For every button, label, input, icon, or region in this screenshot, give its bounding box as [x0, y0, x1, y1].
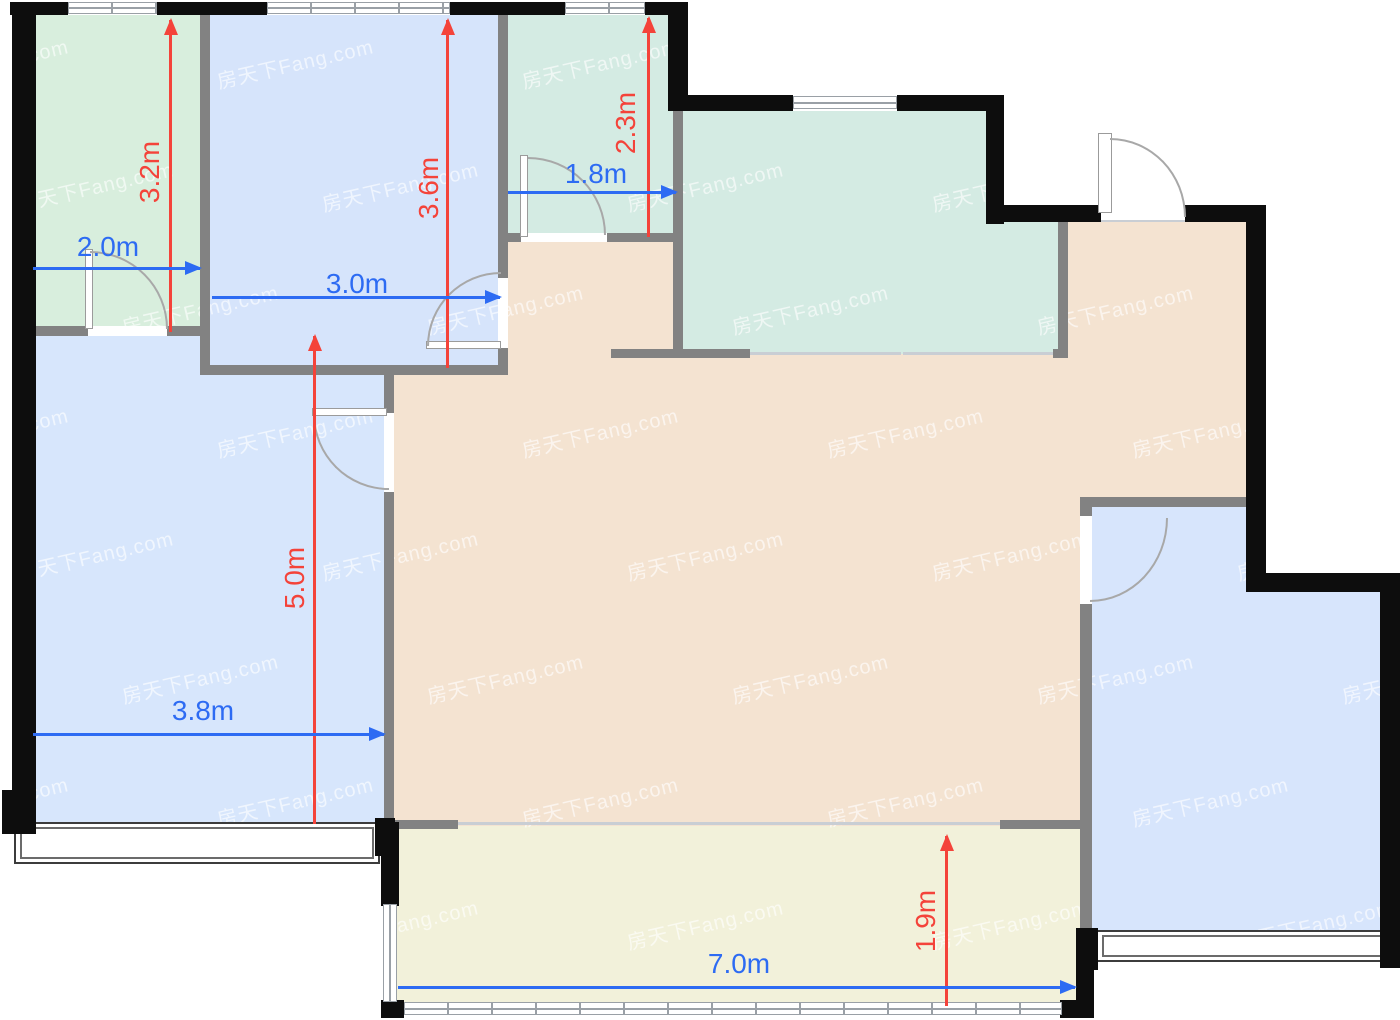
- bay-window-bottom-right: [1096, 930, 1394, 962]
- dim-label-2-0m: 2.0m: [66, 232, 150, 262]
- bay-window-left: [14, 822, 380, 864]
- dim-arrow: [1060, 980, 1077, 994]
- wall-outer: [12, 2, 36, 834]
- wall: [200, 365, 508, 375]
- wall: [673, 93, 683, 358]
- dim-label-3-6m: 3.6m: [414, 146, 444, 230]
- dim-line-3-6m: [446, 20, 449, 368]
- wall-outer: [986, 205, 1101, 222]
- wall: [1080, 604, 1092, 934]
- dim-arrow: [642, 16, 656, 33]
- dim-arrow: [308, 334, 322, 351]
- wall: [36, 326, 88, 336]
- window: [383, 904, 397, 1002]
- area-living-dining-2: [506, 240, 676, 826]
- wall: [384, 492, 394, 833]
- watermark-text: 房天下Fang.com: [1129, 30, 1291, 94]
- dim-line-2-0m: [33, 267, 200, 270]
- room-green-large: [683, 111, 993, 354]
- room-green-large-ext: [986, 222, 1062, 354]
- dim-arrow: [485, 290, 502, 304]
- wall: [1058, 216, 1068, 358]
- dim-arrow: [940, 834, 954, 851]
- dim-label-3-2m: 3.2m: [135, 130, 165, 214]
- dim-line-1-8m: [508, 191, 676, 194]
- wall: [200, 15, 210, 375]
- wall: [1080, 497, 1258, 507]
- dim-label-3-0m: 3.0m: [315, 269, 399, 299]
- dim-label-2-3m: 2.3m: [611, 81, 641, 165]
- dim-label-1-9m: 1.9m: [911, 879, 941, 963]
- window: [793, 96, 897, 109]
- window: [68, 2, 157, 14]
- entry-door-arc: [1110, 138, 1186, 217]
- room-blue-left-bedroom: [36, 334, 204, 826]
- watermark-text: 房天下Fang.com: [1339, 276, 1400, 340]
- dim-arrow: [369, 727, 386, 741]
- sliding-opening-balcony: [458, 822, 1000, 825]
- sliding-opening-kitchen-2: [903, 352, 1053, 355]
- wall-outer: [1380, 573, 1400, 934]
- wall-outer: [1380, 930, 1400, 968]
- dim-line-2-3m: [647, 18, 650, 237]
- floor-plan: 房天下Fang.com房天下Fang.com房天下Fang.com房天下Fang…: [0, 0, 1400, 1020]
- wall-outer: [2, 790, 12, 834]
- window: [267, 2, 450, 14]
- wall-outer: [157, 2, 267, 15]
- wall-outer: [375, 818, 395, 856]
- dim-label-5-0m: 5.0m: [280, 536, 310, 620]
- window-balcony: [404, 1002, 1062, 1015]
- watermark-text: 房天下Fang.com: [824, 30, 986, 94]
- dim-label-3-8m: 3.8m: [161, 696, 245, 726]
- wall-outer: [668, 95, 793, 111]
- wall-outer: [668, 2, 688, 100]
- dim-line-3-8m: [33, 733, 384, 736]
- dim-arrow: [441, 18, 455, 35]
- wall-outer: [1246, 205, 1266, 592]
- wall: [1000, 820, 1082, 829]
- area-entry-hall: [1066, 220, 1252, 505]
- wall: [607, 233, 683, 242]
- dim-line-7-0m: [398, 986, 1075, 989]
- wall-outer: [1246, 573, 1400, 592]
- wall: [504, 233, 521, 242]
- sliding-opening-kitchen: [750, 352, 901, 355]
- dim-line-3-2m: [169, 20, 172, 332]
- wall-outer: [450, 2, 565, 15]
- wall: [1080, 497, 1092, 516]
- door-leaf: [520, 155, 528, 237]
- dim-label-1-8m: 1.8m: [554, 159, 638, 189]
- dim-arrow: [164, 18, 178, 35]
- area-living-dining-1: [392, 368, 506, 826]
- dim-label-7-0m: 7.0m: [697, 949, 781, 979]
- wall-outer: [1060, 1000, 1083, 1018]
- wall: [384, 365, 394, 413]
- room-blue-bottom-right-b: [1256, 590, 1384, 932]
- dim-arrow: [661, 185, 678, 199]
- wall-outer: [381, 1000, 404, 1018]
- window: [565, 2, 645, 14]
- wall: [611, 349, 750, 358]
- area-living-dining-3: [676, 354, 1086, 826]
- dim-arrow: [185, 261, 202, 275]
- wall: [498, 348, 508, 375]
- dim-line-1-9m: [945, 836, 948, 1006]
- watermark-text: 房天下Fang.com: [14, 891, 176, 955]
- dim-line-5-0m: [313, 336, 316, 824]
